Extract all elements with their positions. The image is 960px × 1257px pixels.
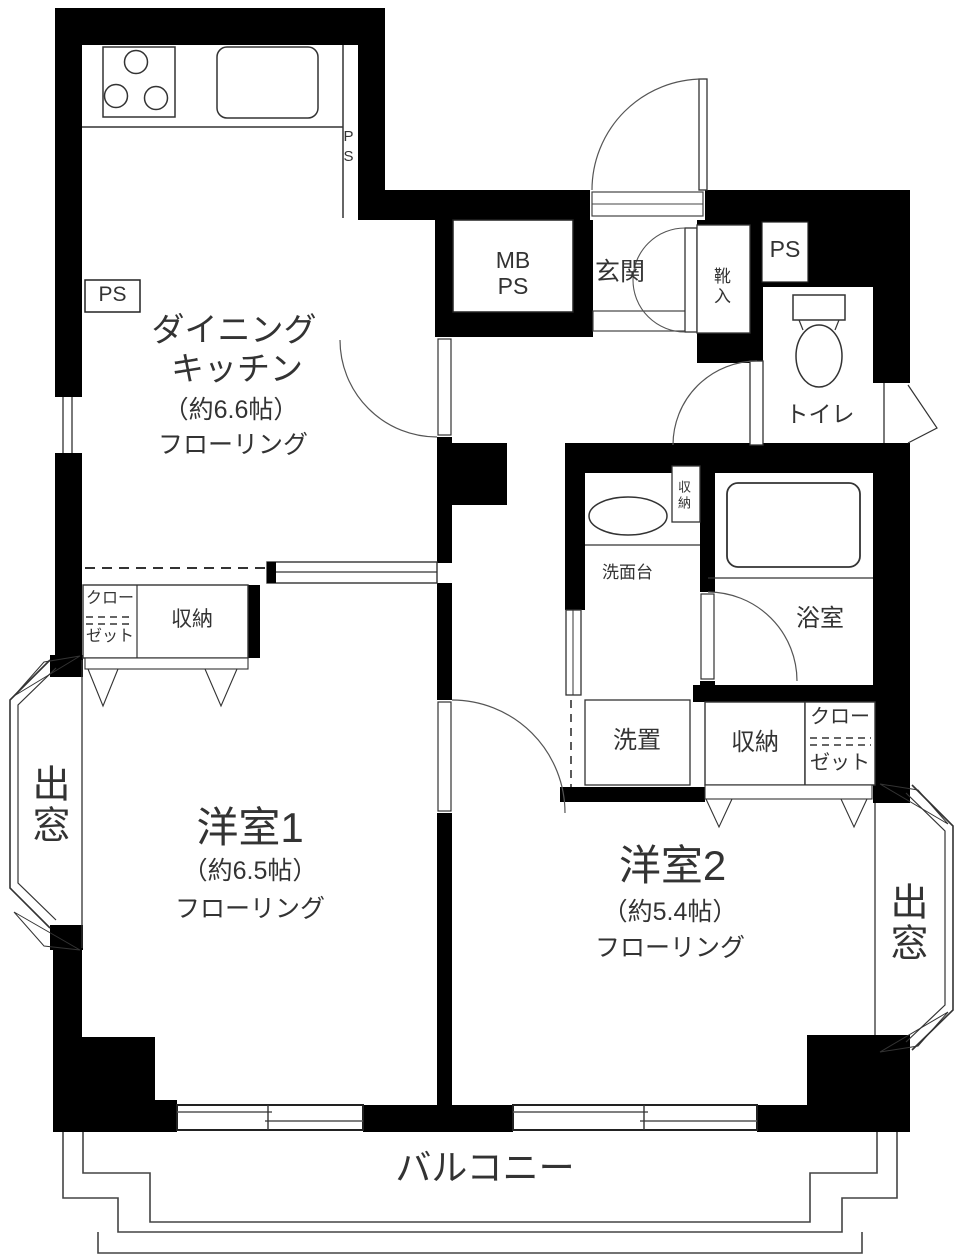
wall-bottom-right <box>757 1105 807 1132</box>
wall-under-mbps <box>435 312 593 337</box>
room1-flooring: フローリング <box>145 895 355 923</box>
room1-closet-label-2: ゼット <box>84 628 136 646</box>
wall-bath-west <box>700 473 715 592</box>
wall-bottom-left <box>53 1100 177 1132</box>
room1-door-arc <box>452 700 565 813</box>
shoe-cabinet-label: 靴入 <box>712 252 729 322</box>
kitchen-door-leaf <box>438 339 451 435</box>
bay-window-right-label: 出窓 <box>886 858 924 988</box>
kitchen-sink-icon <box>217 47 318 118</box>
dining-kitchen-label-1: ダイニング <box>149 312 319 349</box>
room1-door-leaf <box>438 702 451 811</box>
mb-ps-label: PS <box>498 273 529 299</box>
room2-balcony-window <box>513 1105 757 1130</box>
toilet-door-arc <box>673 361 757 445</box>
bathtub-icon <box>727 483 860 567</box>
washroom-storage-label: 収納 <box>677 471 690 521</box>
kitchen-window <box>55 397 82 453</box>
dining-kitchen-label-2: キッチン <box>152 351 322 388</box>
ps-shaft-kitchen-top: PS <box>341 126 356 170</box>
wall-washroom-west <box>565 473 585 610</box>
wall-room2-north <box>560 787 705 802</box>
kitchen-door-arc <box>340 340 437 437</box>
toilet-label: トイレ <box>780 402 860 428</box>
entrance-door-leaf <box>699 79 707 190</box>
room2-flooring: フローリング <box>565 934 775 962</box>
room1-storage-label: 収納 <box>160 608 224 632</box>
dining-kitchen-size: （約6.6帖） <box>131 396 331 424</box>
room1-closet-track <box>85 658 248 669</box>
wall-bath-south <box>693 685 873 702</box>
wall-divider-b <box>437 583 452 700</box>
laundry-label: 洗置 <box>597 728 677 755</box>
room1-name: 洋室1 <box>160 804 340 851</box>
wall-corner-pillar <box>452 443 507 505</box>
washroom-label: 洗面台 <box>585 563 670 582</box>
room2-closet-label-2: ゼット <box>808 752 872 774</box>
ps-shaft-entrance: PS <box>762 237 808 263</box>
folding-door-icon <box>706 799 732 827</box>
ps-shaft-kitchen-box: PS <box>85 283 140 307</box>
stove-icon <box>103 47 175 117</box>
toilet-icon <box>793 295 845 387</box>
storage-units <box>83 466 875 827</box>
room2-closet-track <box>705 785 872 799</box>
toilet-window <box>875 383 908 443</box>
wall-left-mid <box>55 453 82 660</box>
wall-east-mid <box>873 443 910 803</box>
room2-name: 洋室2 <box>580 842 765 889</box>
folding-door-icon <box>841 799 867 827</box>
shoe-cabinet-front <box>685 228 697 332</box>
dining-kitchen-flooring: フローリング <box>133 431 333 459</box>
folding-door-icon <box>205 669 237 706</box>
wall-divider-a <box>437 437 452 563</box>
folding-door-icon <box>88 669 118 706</box>
wall-mid-horizontal <box>565 443 878 473</box>
walls <box>50 8 910 1132</box>
bay-window-left-label: 出窓 <box>28 740 66 870</box>
wall-corner-block-sw <box>80 1037 155 1100</box>
room2-storage-label: 収納 <box>715 730 795 757</box>
bathroom-door-leaf <box>701 594 714 679</box>
wall-left-lower <box>53 948 82 1105</box>
wall-bay-left-bottom <box>50 925 83 950</box>
mb-ps-shaft: MBPS <box>455 248 571 300</box>
wall-east-upper <box>873 287 910 383</box>
wall-top-left <box>55 8 385 45</box>
balcony-label: バルコニー <box>360 1148 610 1188</box>
room1-size: （約6.5帖） <box>145 857 355 885</box>
bay-corner-hatch <box>880 1012 948 1052</box>
room1-closet-label-1: クロー <box>84 590 136 608</box>
entrance-door-arc <box>592 79 703 190</box>
floor-plan: ダイニング キッチン （約6.6帖） フローリング PS PS MBPS 玄関 … <box>0 0 960 1257</box>
wall-top-mid <box>385 190 590 220</box>
entrance-label: 玄関 <box>575 258 665 286</box>
wall-kitchen-right <box>358 8 385 220</box>
wall-divider-c <box>437 813 452 1113</box>
mb-label: MB <box>496 247 531 273</box>
toilet-door-leaf <box>750 361 763 445</box>
wall-bottom-mid <box>363 1105 513 1132</box>
toilet-window-casement <box>908 385 937 443</box>
room2-size: （約5.4帖） <box>565 898 775 926</box>
bay-corner-hatch <box>880 784 948 824</box>
room2-closet-label-1: クロー <box>808 706 872 728</box>
wall-closet-stub <box>248 585 260 658</box>
bathroom-label: 浴室 <box>780 606 860 633</box>
washbasin-icon <box>589 497 667 535</box>
wall-left-upper <box>55 45 82 397</box>
room1-balcony-window <box>177 1105 363 1130</box>
wall-top-right <box>705 190 910 220</box>
